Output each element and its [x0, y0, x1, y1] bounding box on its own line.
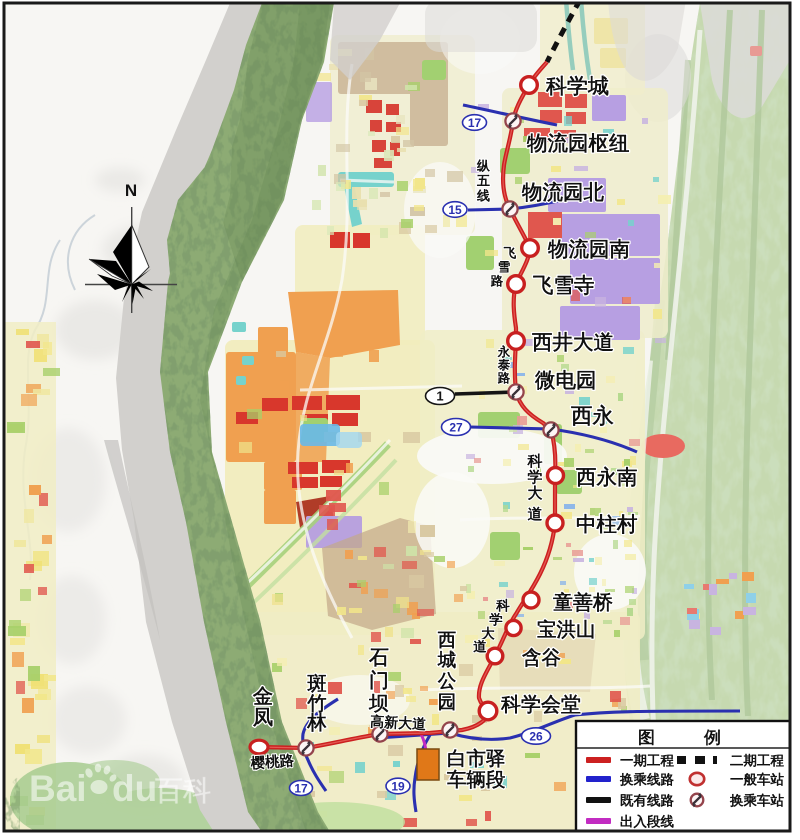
- svg-text:1: 1: [436, 389, 443, 404]
- svg-text:17: 17: [294, 781, 308, 795]
- svg-text:15: 15: [448, 203, 462, 217]
- svg-text:26: 26: [529, 729, 543, 743]
- svg-text:du: du: [112, 768, 157, 809]
- svg-text:Bai: Bai: [29, 768, 87, 809]
- svg-text:N: N: [125, 181, 137, 200]
- svg-text:19: 19: [391, 779, 405, 793]
- svg-text:17: 17: [468, 116, 482, 130]
- svg-text:27: 27: [449, 420, 463, 434]
